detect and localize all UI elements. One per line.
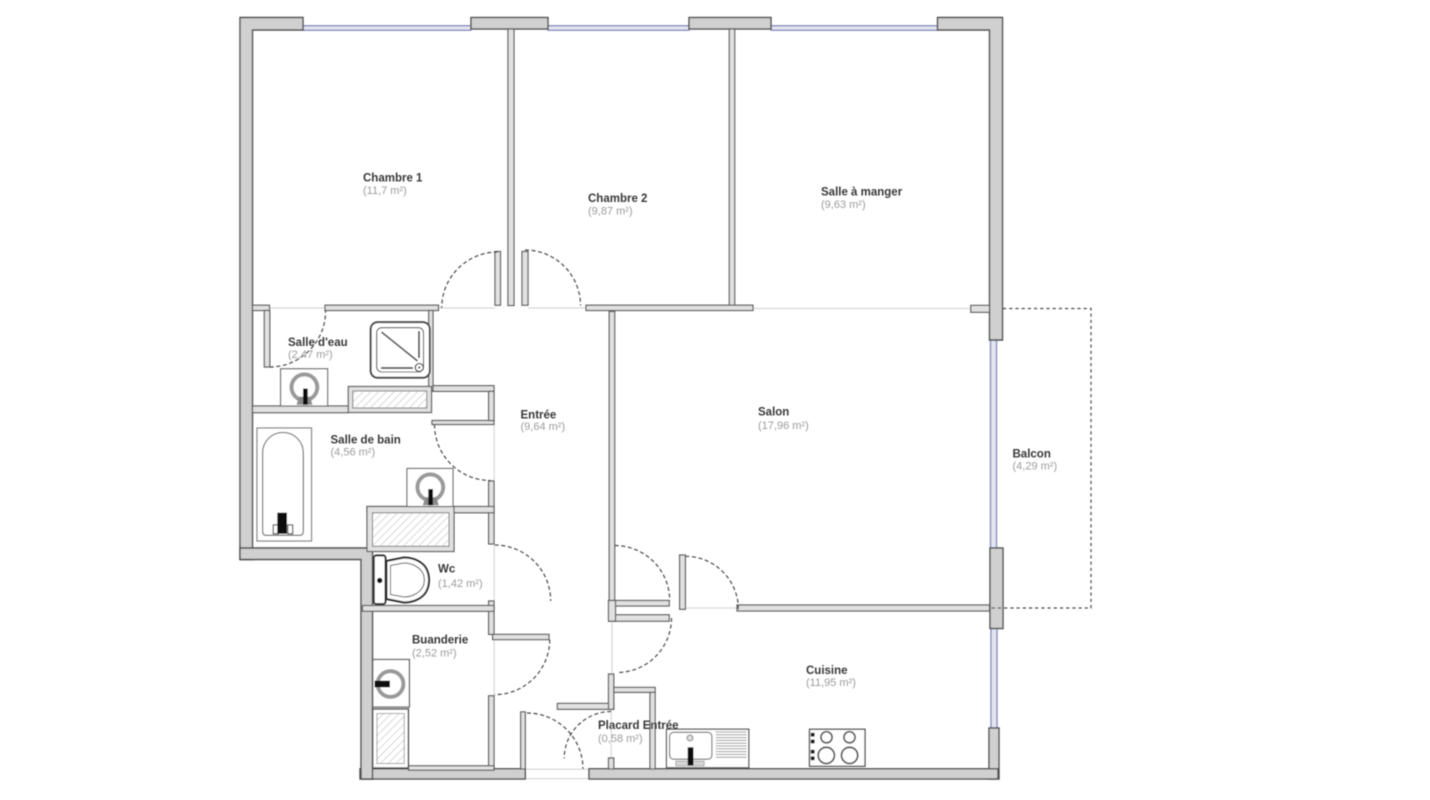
svg-text:(1,42 m²): (1,42 m²) — [438, 578, 483, 590]
svg-text:(9,87 m²): (9,87 m²) — [588, 206, 633, 218]
svg-text:Salle de bain: Salle de bain — [331, 435, 401, 447]
svg-text:(4,56 m²): (4,56 m²) — [331, 447, 376, 459]
svg-text:(0,58 m²): (0,58 m²) — [598, 733, 643, 745]
svg-text:Placard Entrée: Placard Entrée — [598, 720, 679, 732]
svg-text:(9,63 m²): (9,63 m²) — [821, 199, 866, 211]
svg-text:Salle à manger: Salle à manger — [821, 187, 903, 199]
svg-text:(11,7 m²): (11,7 m²) — [363, 185, 407, 197]
svg-text:Balcon: Balcon — [1013, 449, 1051, 461]
svg-text:(17,96 m²): (17,96 m²) — [758, 420, 809, 432]
svg-text:Chambre 2: Chambre 2 — [588, 193, 647, 205]
svg-text:Cuisine: Cuisine — [806, 665, 848, 677]
svg-text:Salon: Salon — [758, 407, 789, 419]
svg-text:(2,52 m²): (2,52 m²) — [412, 648, 457, 660]
svg-text:Wc: Wc — [438, 564, 456, 576]
svg-text:Buanderie: Buanderie — [412, 635, 468, 647]
svg-text:(4,29 m²): (4,29 m²) — [1013, 461, 1058, 473]
svg-text:Salle d'eau: Salle d'eau — [288, 337, 348, 349]
svg-text:Chambre 1: Chambre 1 — [363, 173, 423, 185]
svg-text:(2,47 m²): (2,47 m²) — [288, 349, 333, 361]
svg-text:(9,64 m²): (9,64 m²) — [521, 421, 566, 433]
svg-text:Entrée: Entrée — [521, 410, 557, 422]
svg-text:(11,95 m²): (11,95 m²) — [806, 677, 856, 689]
